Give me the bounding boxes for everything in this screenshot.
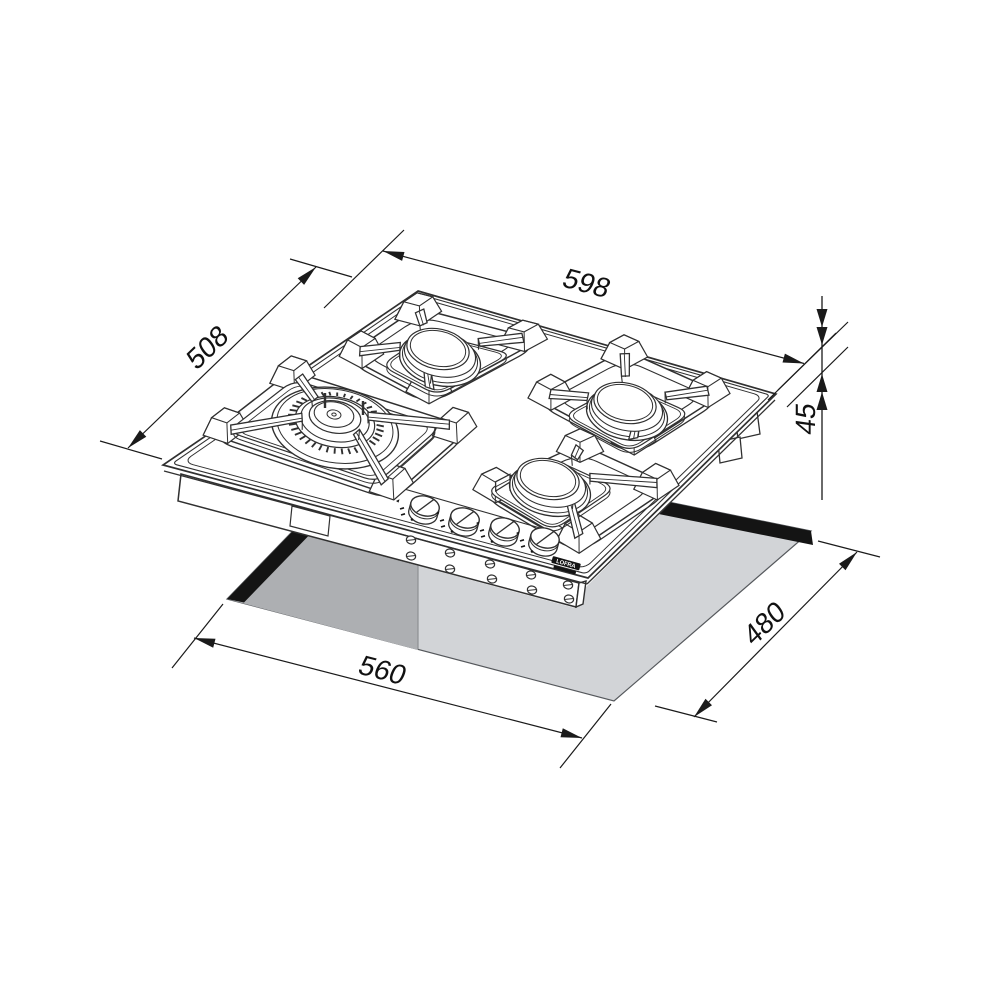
svg-text:45: 45 xyxy=(790,401,821,436)
svg-text:598: 598 xyxy=(558,263,615,304)
svg-text:480: 480 xyxy=(738,594,790,652)
svg-text:560: 560 xyxy=(354,650,411,690)
svg-text:508: 508 xyxy=(181,318,233,376)
